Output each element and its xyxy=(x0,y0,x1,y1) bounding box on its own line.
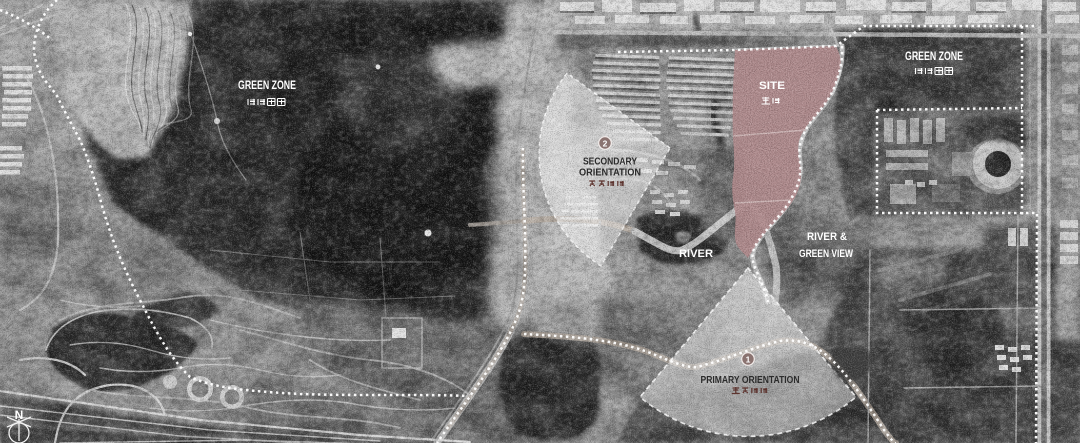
svg-text:RIVER: RIVER xyxy=(679,248,713,260)
svg-text:N: N xyxy=(15,408,24,422)
svg-text:SITE: SITE xyxy=(759,80,785,92)
svg-text:2: 2 xyxy=(603,139,608,149)
svg-text:1: 1 xyxy=(746,355,751,365)
svg-text:SECONDARY: SECONDARY xyxy=(583,157,637,168)
svg-text:RIVER &: RIVER & xyxy=(807,231,847,243)
svg-text:GREEN ZONE: GREEN ZONE xyxy=(238,80,296,92)
svg-text:GREEN VIEW: GREEN VIEW xyxy=(799,248,853,260)
svg-text:GREEN ZONE: GREEN ZONE xyxy=(905,51,963,63)
svg-text:ORIENTATION: ORIENTATION xyxy=(579,168,641,179)
svg-text:PRIMARY ORIENTATION: PRIMARY ORIENTATION xyxy=(701,375,800,386)
